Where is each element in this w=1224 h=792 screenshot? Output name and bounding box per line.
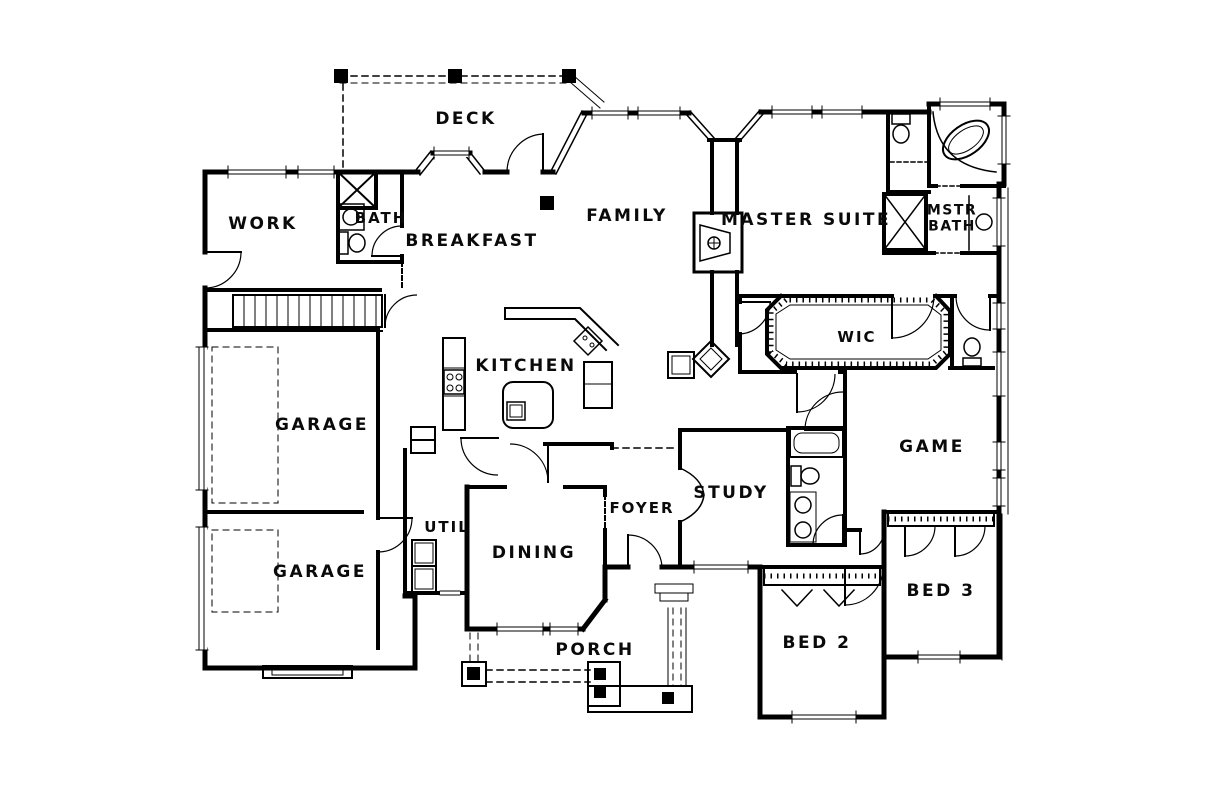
- porch-post: [594, 668, 606, 680]
- toilet-bowl: [964, 338, 980, 356]
- wic-toilet-door: [956, 296, 990, 330]
- front-steps: [655, 584, 693, 593]
- refrigerator: [584, 362, 612, 408]
- utility-fixtures: [411, 427, 436, 592]
- walkway: [486, 670, 590, 682]
- room-label-master-suite: MASTER SUITE: [721, 210, 891, 230]
- toilet-tank: [791, 466, 801, 486]
- wic-toilet-room: [963, 338, 981, 366]
- game-door-2: [805, 392, 843, 430]
- sink: [976, 214, 992, 230]
- deck-post: [334, 69, 348, 83]
- bed3-door: [860, 530, 884, 554]
- toilet-bowl: [893, 125, 909, 143]
- window-strips-horizontal: [228, 98, 990, 723]
- hall-bath-fixtures: [790, 429, 843, 542]
- room-label-bed2: BED 2: [783, 633, 852, 653]
- roof-trim-lines: [1002, 188, 1008, 660]
- util-hall-door: [461, 438, 498, 475]
- room-label-garage-lower: GARAGE: [273, 562, 367, 582]
- garden-tub: [936, 113, 996, 167]
- sink: [795, 497, 811, 513]
- room-label-porch: PORCH: [555, 640, 634, 660]
- room-label-game: GAME: [899, 437, 965, 457]
- stairs-door: [385, 295, 417, 327]
- room-label-deck: DECK: [435, 109, 496, 129]
- kitchen-hall-door: [510, 444, 548, 482]
- room-label-work: WORK: [228, 214, 297, 234]
- room-label-mstr-bath-line2: BATH: [927, 219, 977, 235]
- floor-plan-svg: [0, 0, 1224, 792]
- room-label-bed3: BED 3: [907, 581, 976, 601]
- deck-post: [540, 196, 554, 210]
- bed3-closet: [888, 512, 994, 526]
- room-label-dining: DINING: [492, 543, 576, 563]
- room-label-wic: WIC: [837, 328, 876, 346]
- room-label-mstr-bath: MSTR BATH: [927, 203, 977, 234]
- room-label-family: FAMILY: [586, 206, 668, 226]
- room-label-kitchen: KITCHEN: [475, 356, 576, 376]
- bath-door: [372, 226, 402, 256]
- porch-post: [594, 686, 606, 698]
- kitchen-counter-west: [443, 338, 465, 430]
- deck-post: [448, 69, 462, 83]
- tub-platform: [933, 112, 996, 172]
- room-label-study: STUDY: [693, 483, 768, 503]
- washer: [412, 540, 436, 566]
- toilet-tank: [892, 114, 910, 124]
- sink: [795, 522, 811, 538]
- room-label-breakfast: BREAKFAST: [405, 231, 538, 251]
- porch-post: [467, 667, 480, 680]
- dryer: [412, 566, 436, 592]
- hanging-rod-chevrons: [782, 590, 854, 606]
- toilet-tank: [963, 358, 981, 366]
- porch-post: [662, 692, 674, 704]
- chimney: [338, 172, 376, 208]
- bed3-closet-doors: [905, 526, 985, 556]
- media-niche: [668, 341, 729, 378]
- floor-plan: DECK WORK BATH BREAKFAST FAMILY MASTER S…: [0, 0, 1224, 792]
- toilet-bowl: [349, 234, 365, 252]
- room-label-mstr-bath-line1: MSTR: [927, 203, 977, 219]
- front-door: [628, 535, 662, 567]
- toilet-bowl: [801, 468, 819, 484]
- game-door-1: [797, 374, 835, 412]
- deck-door: [507, 134, 543, 172]
- room-label-garage-upper: GARAGE: [275, 415, 369, 435]
- hall-bath-door: [813, 515, 843, 545]
- vanity-counter: [790, 492, 816, 542]
- room-label-foyer: FOYER: [609, 499, 674, 517]
- stairs: [233, 295, 382, 331]
- room-label-util: UTIL: [424, 518, 470, 536]
- front-steps: [660, 593, 688, 601]
- room-label-bath: BATH: [355, 209, 408, 227]
- work-door: [205, 252, 241, 288]
